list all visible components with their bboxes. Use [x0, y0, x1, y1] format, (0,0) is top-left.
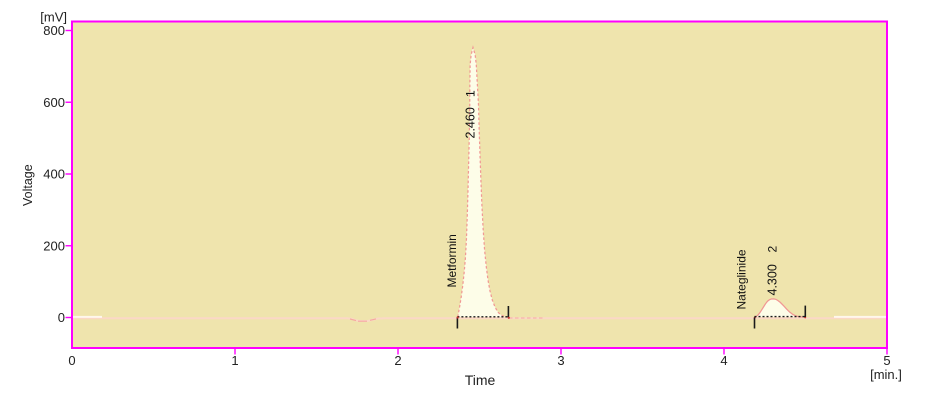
svg-text:0: 0 [58, 310, 65, 325]
svg-text:1: 1 [464, 90, 478, 97]
svg-text:200: 200 [43, 238, 65, 253]
svg-text:Nateglinide: Nateglinide [735, 249, 749, 309]
svg-text:Voltage: Voltage [21, 164, 35, 206]
svg-text:2: 2 [766, 246, 780, 253]
svg-text:1: 1 [231, 353, 238, 368]
svg-text:2: 2 [394, 353, 401, 368]
svg-text:2.460: 2.460 [464, 107, 478, 138]
svg-text:0: 0 [68, 353, 75, 368]
svg-text:600: 600 [43, 95, 65, 110]
svg-text:Metformin: Metformin [445, 234, 459, 287]
svg-text:5: 5 [883, 353, 890, 368]
svg-text:Time: Time [465, 372, 496, 388]
svg-text:4: 4 [720, 353, 727, 368]
svg-text:4.300: 4.300 [766, 264, 780, 295]
svg-text:800: 800 [43, 23, 65, 38]
svg-text:400: 400 [43, 167, 65, 182]
svg-text:[min.]: [min.] [870, 367, 902, 382]
svg-text:3: 3 [557, 353, 564, 368]
